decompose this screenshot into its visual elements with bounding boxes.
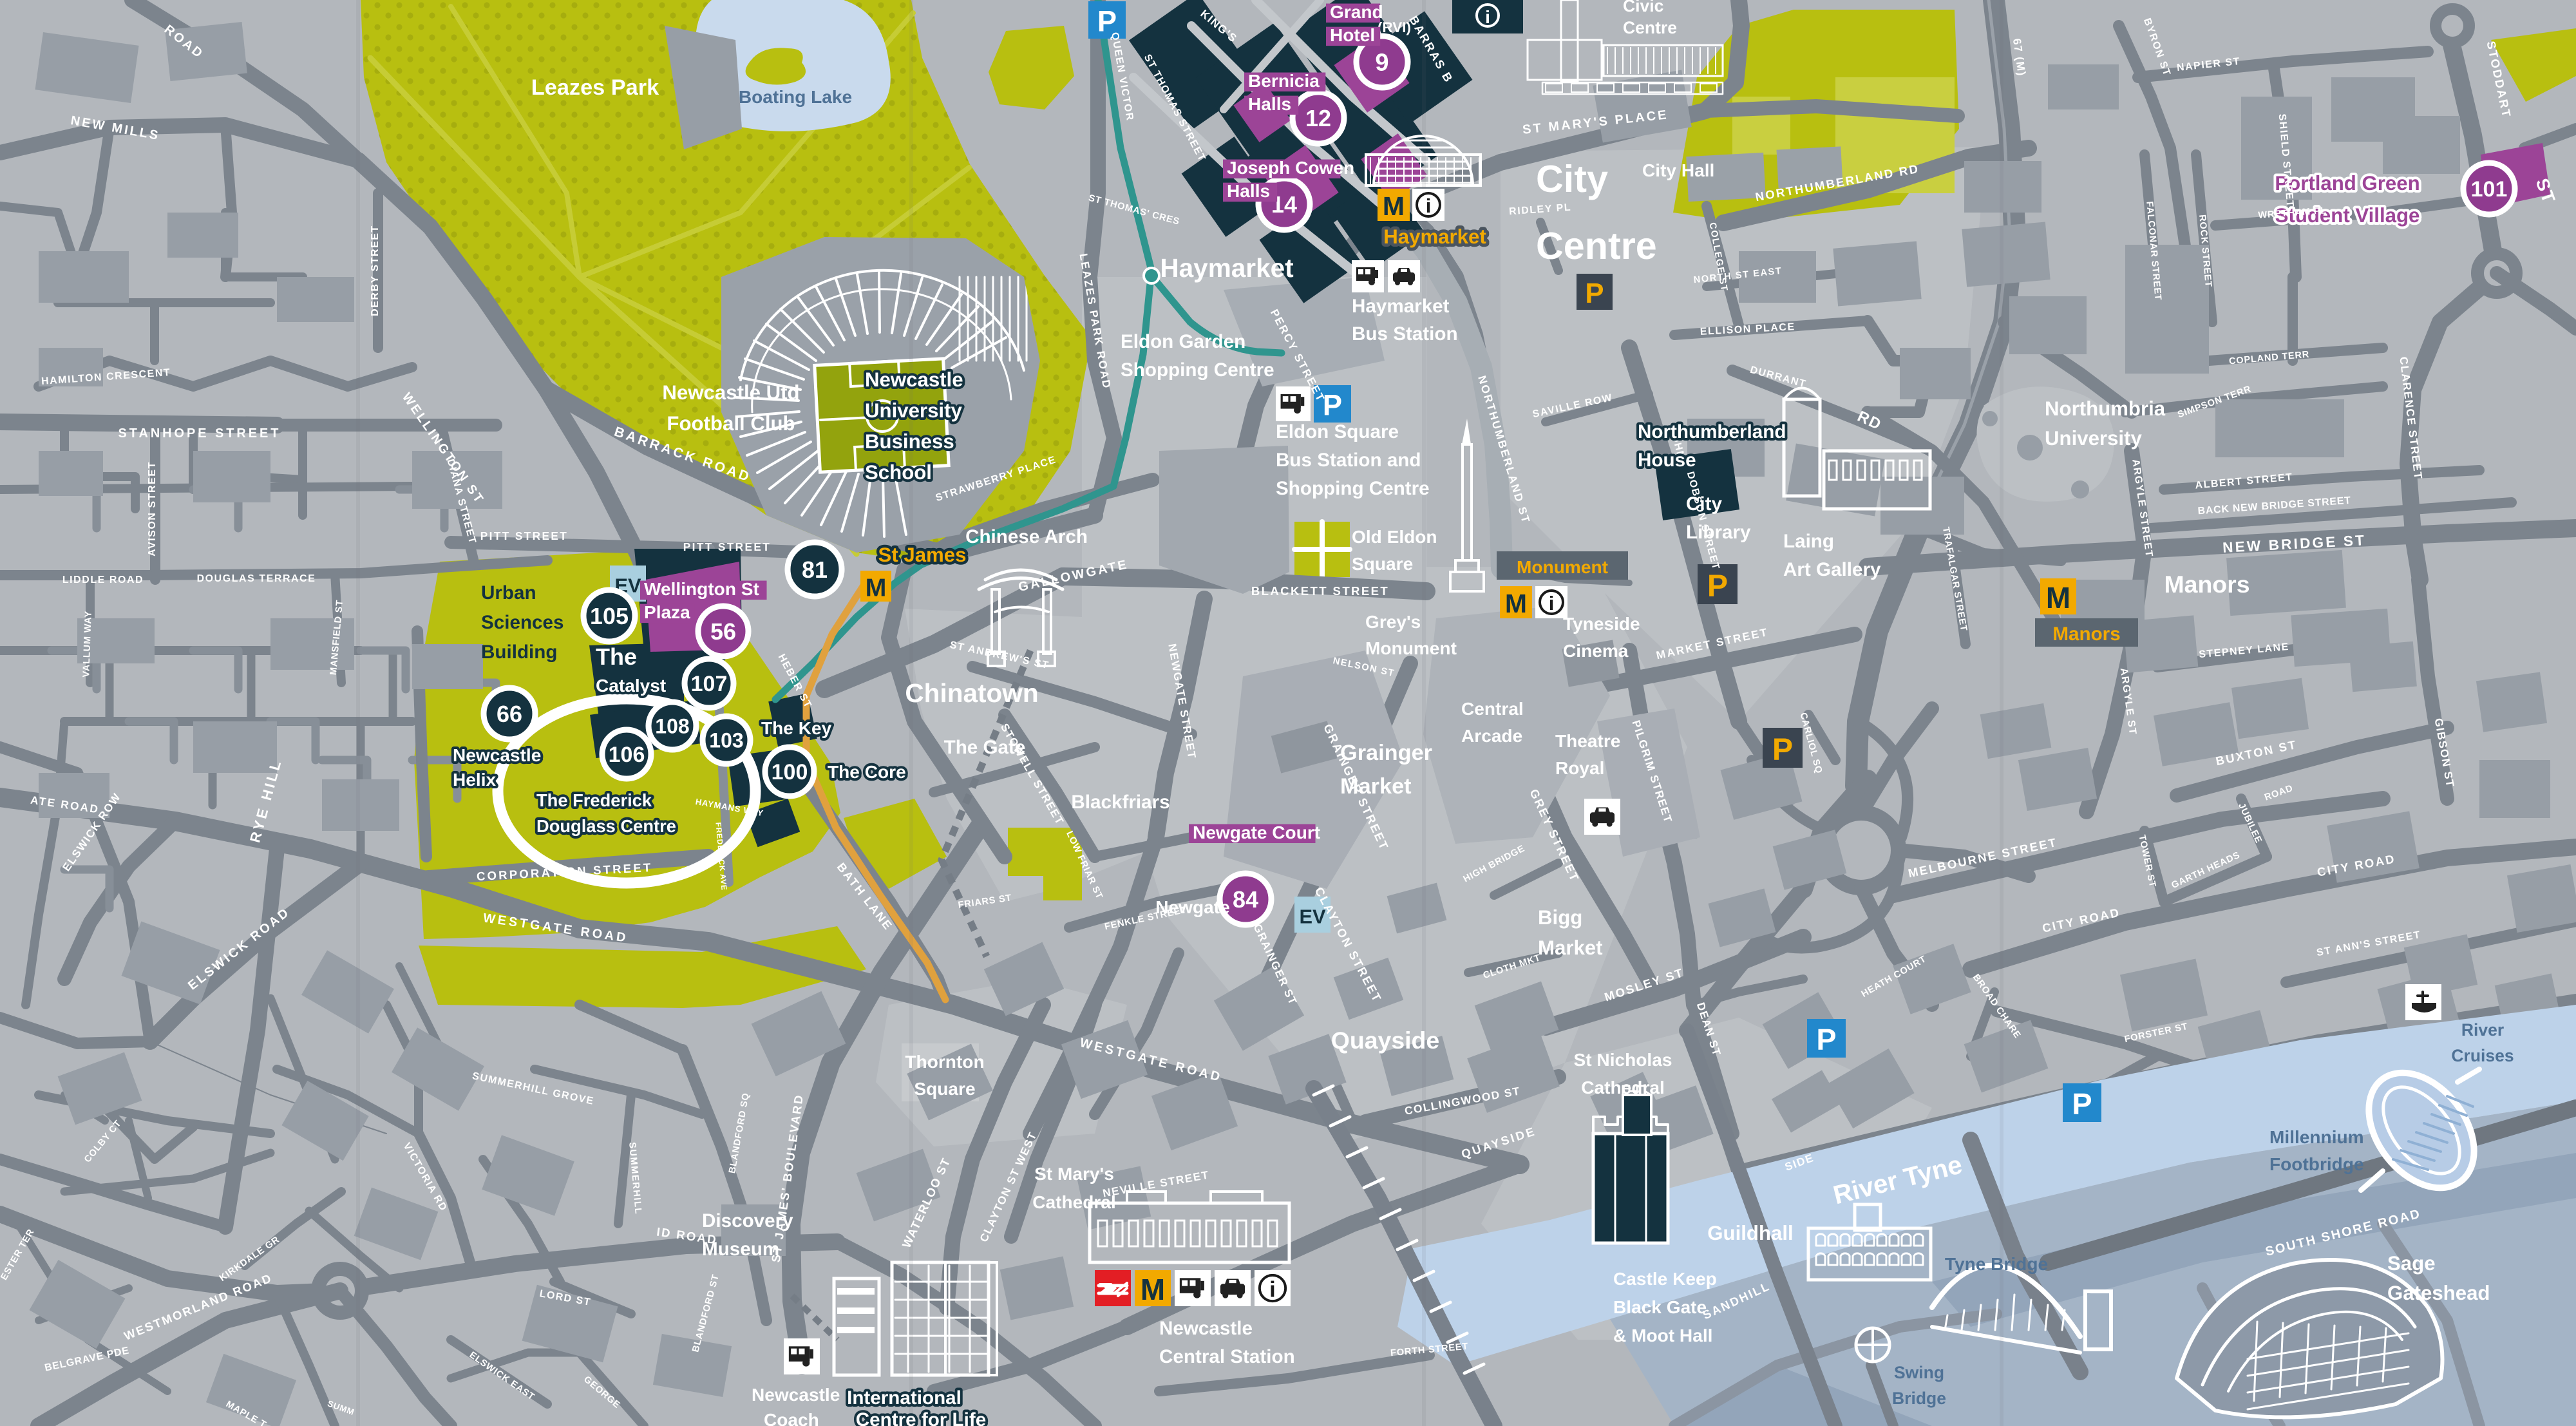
svg-text:Centre: Centre	[1536, 224, 1657, 267]
svg-text:BLACKETT STREET: BLACKETT STREET	[1251, 584, 1389, 598]
svg-text:Centre for Life: Centre for Life	[856, 1409, 986, 1426]
svg-text:Tyne Bridge: Tyne Bridge	[1945, 1254, 2048, 1274]
svg-text:Cinema: Cinema	[1563, 641, 1629, 661]
svg-text:Haymarket: Haymarket	[1383, 225, 1486, 248]
svg-text:101: 101	[2471, 177, 2508, 202]
svg-text:Eldon Garden: Eldon Garden	[1121, 331, 1245, 352]
svg-text:Shopping Centre: Shopping Centre	[1121, 359, 1274, 381]
svg-text:Manors: Manors	[2052, 623, 2120, 645]
svg-text:56: 56	[710, 618, 736, 645]
svg-text:Douglass Centre: Douglass Centre	[536, 816, 676, 836]
svg-text:Helix: Helix	[453, 770, 496, 790]
svg-text:Square: Square	[914, 1079, 975, 1099]
svg-text:Guildhall: Guildhall	[1707, 1222, 1793, 1244]
svg-text:The Core: The Core	[828, 762, 906, 782]
svg-text:105: 105	[590, 603, 629, 629]
svg-text:100: 100	[772, 760, 808, 784]
svg-text:The Frederick: The Frederick	[536, 790, 652, 810]
svg-text:Gateshead: Gateshead	[2387, 1282, 2490, 1304]
svg-text:Castle Keep: Castle Keep	[1613, 1269, 1717, 1289]
svg-text:Grand: Grand	[1330, 2, 1383, 22]
svg-text:The Gate: The Gate	[944, 737, 1026, 758]
svg-text:i: i	[1485, 7, 1490, 27]
svg-text:PITT STREET: PITT STREET	[683, 540, 771, 553]
svg-text:Bridge: Bridge	[1892, 1389, 1946, 1408]
svg-text:P: P	[2072, 1087, 2092, 1121]
svg-text:Newgate Court: Newgate Court	[1193, 822, 1320, 842]
svg-text:Leazes Park: Leazes Park	[531, 75, 659, 100]
svg-text:M: M	[2046, 581, 2070, 614]
svg-text:Central: Central	[1461, 699, 1524, 719]
svg-text:Sciences: Sciences	[481, 612, 563, 633]
svg-text:81: 81	[802, 556, 828, 583]
svg-text:Cathedral: Cathedral	[1581, 1078, 1665, 1098]
svg-text:Haymarket: Haymarket	[1160, 253, 1293, 283]
svg-text:Civic: Civic	[1623, 0, 1663, 15]
svg-text:Newcastle: Newcastle	[1159, 1318, 1253, 1339]
svg-text:Bus Station: Bus Station	[1352, 323, 1458, 345]
svg-text:M: M	[1505, 589, 1527, 618]
svg-text:Newgate: Newgate	[1155, 897, 1229, 917]
svg-text:St Nicholas: St Nicholas	[1574, 1050, 1672, 1070]
svg-text:Royal: Royal	[1555, 758, 1604, 778]
svg-text:Cruises: Cruises	[2451, 1046, 2514, 1065]
svg-text:103: 103	[709, 729, 743, 752]
svg-text:Black Gate: Black Gate	[1613, 1297, 1707, 1317]
svg-text:AVISON STREET: AVISON STREET	[147, 461, 158, 556]
svg-text:Blackfriars: Blackfriars	[1071, 792, 1170, 813]
svg-text:P: P	[1816, 1023, 1836, 1056]
svg-text:City: City	[1686, 493, 1722, 515]
svg-text:LIDDLE ROAD: LIDDLE ROAD	[62, 575, 144, 585]
svg-text:Monument: Monument	[1365, 638, 1457, 658]
svg-text:Discovery: Discovery	[702, 1210, 793, 1231]
svg-text:Central Station: Central Station	[1159, 1346, 1295, 1367]
svg-text:International: International	[847, 1387, 961, 1409]
svg-text:Shopping Centre: Shopping Centre	[1276, 478, 1430, 499]
svg-text:Plaza: Plaza	[644, 602, 690, 622]
svg-text:i: i	[1549, 592, 1555, 614]
svg-text:Newcastle: Newcastle	[453, 745, 541, 765]
svg-text:Halls: Halls	[1227, 181, 1270, 201]
svg-text:108: 108	[655, 715, 689, 738]
svg-text:84: 84	[1233, 886, 1258, 913]
svg-text:106: 106	[609, 743, 645, 767]
svg-text:City Hall: City Hall	[1642, 160, 1714, 180]
svg-text:Market: Market	[1538, 936, 1603, 959]
svg-text:Halls: Halls	[1248, 94, 1291, 114]
svg-text:Theatre: Theatre	[1555, 731, 1620, 751]
svg-text:St Mary's: St Mary's	[1034, 1164, 1114, 1184]
svg-text:Bigg: Bigg	[1538, 906, 1582, 929]
svg-text:STANHOPE STREET: STANHOPE STREET	[118, 426, 281, 441]
svg-text:Urban: Urban	[481, 582, 536, 604]
svg-text:Old Eldon: Old Eldon	[1352, 527, 1437, 547]
svg-text:Building: Building	[481, 642, 557, 663]
svg-text:Art Gallery: Art Gallery	[1783, 559, 1881, 580]
svg-text:Football Club: Football Club	[667, 412, 795, 435]
svg-text:Monument: Monument	[1517, 557, 1608, 577]
svg-text:Arcade: Arcade	[1461, 726, 1522, 746]
svg-text:The: The	[596, 643, 637, 670]
svg-text:66: 66	[497, 701, 522, 727]
svg-text:University: University	[2045, 427, 2142, 450]
svg-text:PITT STREET: PITT STREET	[480, 529, 568, 542]
svg-text:St James: St James	[878, 544, 967, 566]
svg-text:School: School	[865, 461, 932, 484]
svg-text:DERBY STREET: DERBY STREET	[370, 225, 381, 316]
svg-text:Portland Green: Portland Green	[2275, 172, 2420, 195]
svg-text:M: M	[1141, 1273, 1165, 1306]
svg-text:Library: Library	[1686, 522, 1751, 543]
svg-text:M: M	[1383, 191, 1405, 221]
svg-text:Museum: Museum	[702, 1239, 779, 1260]
svg-text:Bernicia: Bernicia	[1248, 71, 1320, 91]
svg-text:Chinatown: Chinatown	[905, 678, 1038, 708]
svg-text:The Key: The Key	[761, 718, 832, 738]
svg-text:Laing: Laing	[1783, 531, 1834, 552]
svg-text:Sage: Sage	[2387, 1252, 2436, 1275]
svg-text:Thornton: Thornton	[905, 1052, 984, 1072]
svg-text:9: 9	[1375, 50, 1388, 77]
svg-text:Eldon Square: Eldon Square	[1276, 421, 1399, 442]
svg-text:Newcastle: Newcastle	[752, 1385, 840, 1405]
svg-text:107: 107	[691, 672, 728, 696]
svg-text:Joseph Cowen: Joseph Cowen	[1227, 158, 1354, 178]
svg-text:Business: Business	[865, 430, 954, 453]
svg-text:P: P	[1585, 278, 1604, 309]
svg-text:Quayside: Quayside	[1331, 1027, 1439, 1054]
svg-text:Haymarket: Haymarket	[1352, 296, 1450, 317]
svg-text:Hotel: Hotel	[1330, 25, 1375, 45]
svg-text:Millennium: Millennium	[2269, 1127, 2364, 1147]
svg-text:P: P	[1772, 732, 1793, 767]
svg-text:Coach: Coach	[764, 1410, 819, 1426]
svg-text:12: 12	[1305, 105, 1331, 131]
svg-text:Tyneside: Tyneside	[1563, 614, 1640, 634]
svg-text:House: House	[1638, 450, 1696, 471]
svg-text:Newcastle: Newcastle	[865, 368, 963, 391]
svg-text:Northumbria: Northumbria	[2045, 397, 2166, 420]
svg-text:Grainger: Grainger	[1340, 741, 1432, 765]
svg-text:Grey's: Grey's	[1365, 612, 1421, 632]
svg-text:Boating Lake: Boating Lake	[739, 87, 852, 107]
svg-text:City: City	[1536, 157, 1608, 200]
svg-text:Bus Station and: Bus Station and	[1276, 450, 1421, 471]
svg-text:Footbridge: Footbridge	[2269, 1154, 2364, 1174]
svg-text:Newcastle Utd: Newcastle Utd	[662, 381, 799, 404]
svg-text:i: i	[1426, 195, 1432, 217]
svg-text:River: River	[2461, 1020, 2504, 1040]
svg-text:Manors: Manors	[2164, 571, 2249, 598]
svg-text:Catalyst: Catalyst	[596, 676, 666, 696]
svg-text:Square: Square	[1352, 554, 1413, 574]
svg-text:P: P	[1707, 569, 1728, 604]
svg-text:Wellington St: Wellington St	[644, 579, 759, 599]
svg-text:DOUGLAS TERRACE: DOUGLAS TERRACE	[197, 573, 316, 584]
svg-text:Chinese Arch: Chinese Arch	[965, 526, 1088, 547]
svg-text:Swing: Swing	[1894, 1363, 1944, 1382]
svg-text:University: University	[865, 399, 962, 422]
svg-text:& Moot Hall: & Moot Hall	[1613, 1326, 1712, 1345]
svg-text:M: M	[866, 573, 887, 602]
svg-text:Centre: Centre	[1623, 18, 1677, 37]
svg-text:Northumberland: Northumberland	[1638, 421, 1786, 442]
svg-text:i: i	[1269, 1277, 1276, 1302]
